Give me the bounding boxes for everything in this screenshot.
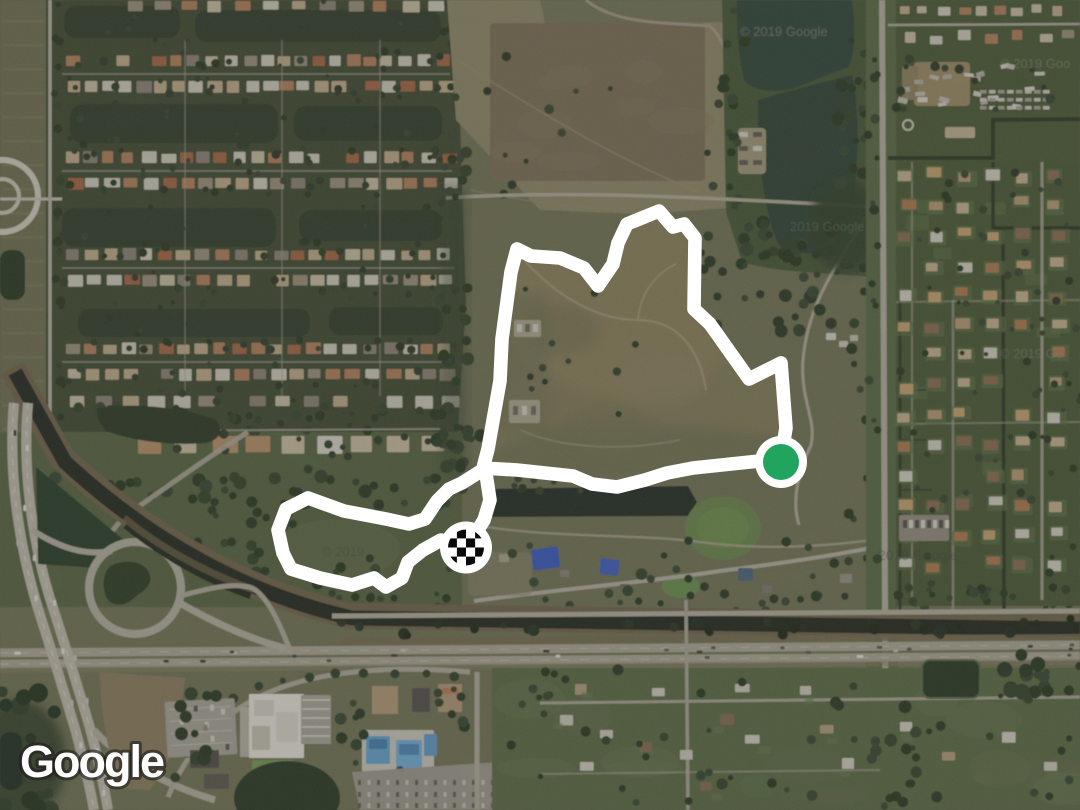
svg-text:Google: Google <box>20 736 164 787</box>
